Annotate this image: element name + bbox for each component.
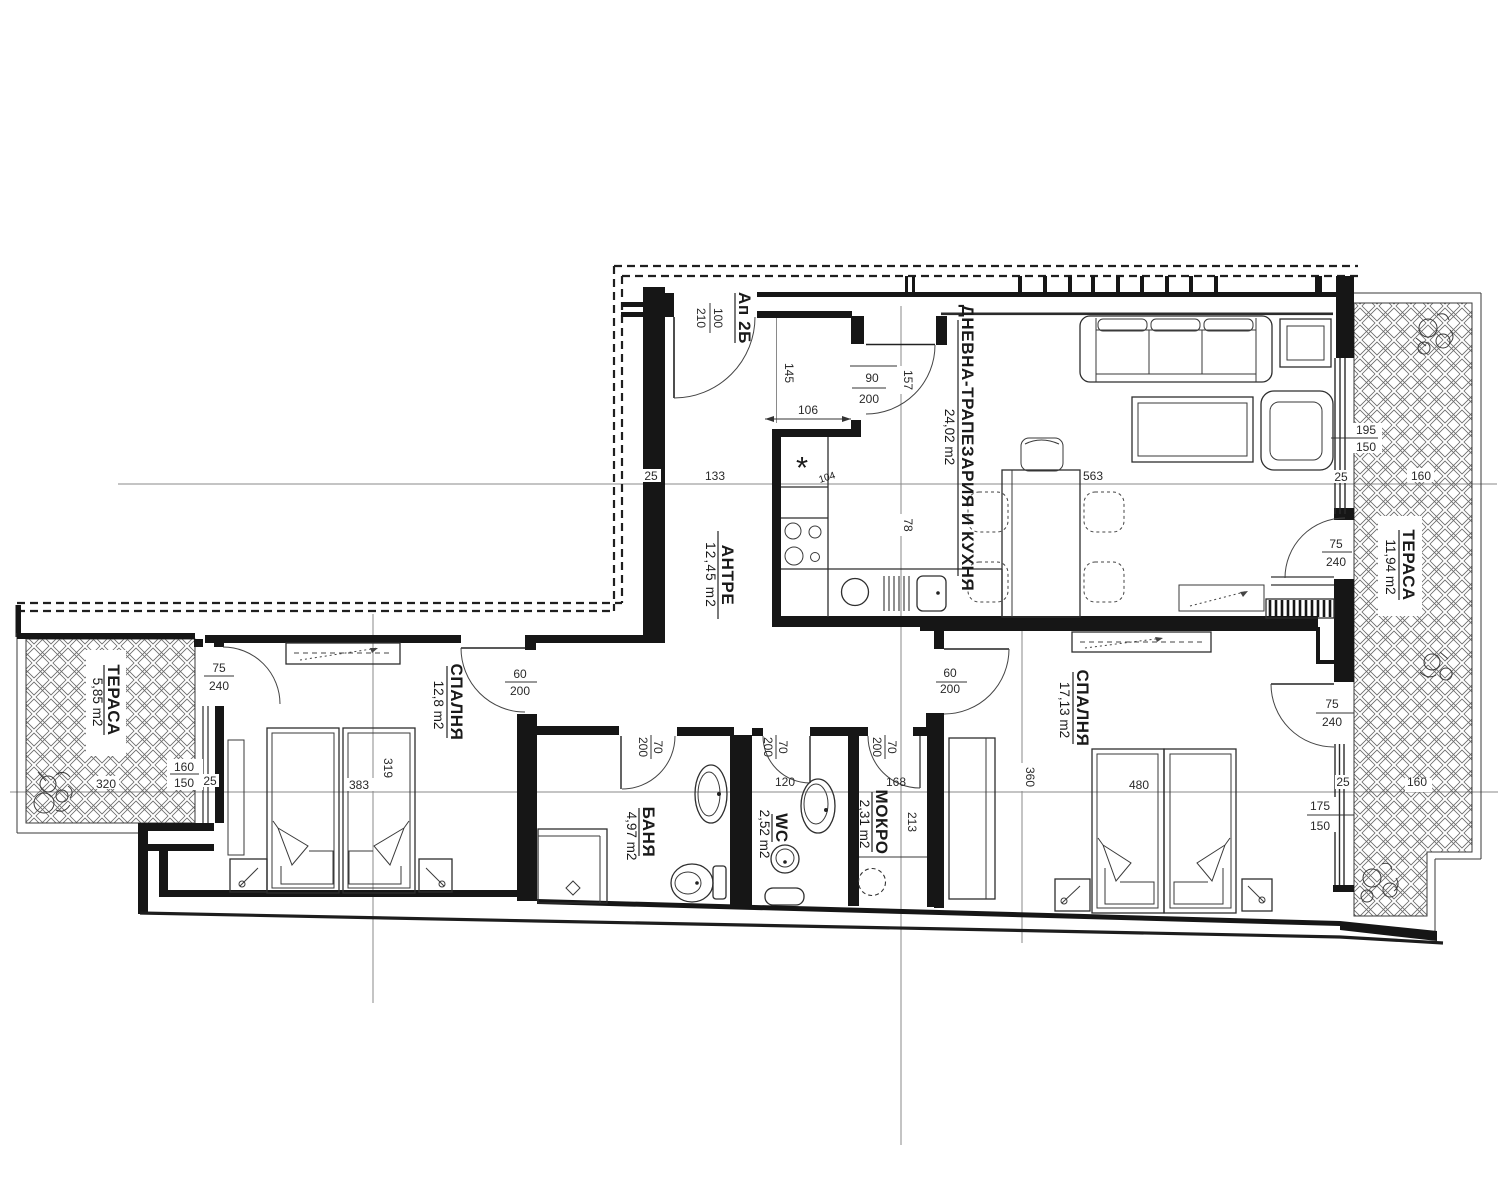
svg-text:150: 150 — [1310, 819, 1330, 833]
svg-text:5,85 m2: 5,85 m2 — [90, 678, 105, 727]
svg-text:60: 60 — [943, 666, 957, 680]
svg-text:АНТРЕ: АНТРЕ — [718, 545, 737, 606]
svg-text:200: 200 — [761, 737, 775, 757]
svg-text:70: 70 — [776, 740, 790, 754]
svg-text:100: 100 — [711, 308, 725, 328]
svg-text:160: 160 — [1407, 775, 1427, 789]
svg-text:157: 157 — [901, 370, 915, 390]
svg-text:25: 25 — [203, 774, 217, 788]
svg-text:383: 383 — [349, 778, 369, 792]
svg-text:ДНЕВНА-ТРАПЕЗАРИЯ И КУХНЯ: ДНЕВНА-ТРАПЕЗАРИЯ И КУХНЯ — [958, 305, 977, 592]
svg-text:210: 210 — [694, 308, 708, 328]
svg-text:160: 160 — [1411, 469, 1431, 483]
svg-text:240: 240 — [209, 679, 229, 693]
svg-text:12,45 m2: 12,45 m2 — [703, 542, 718, 608]
svg-text:480: 480 — [1129, 778, 1149, 792]
svg-text:25: 25 — [1336, 775, 1350, 789]
svg-text:213: 213 — [905, 812, 919, 832]
svg-text:11,94 m2: 11,94 m2 — [1383, 539, 1398, 594]
svg-text:200: 200 — [510, 684, 530, 698]
svg-text:СПАЛНЯ: СПАЛНЯ — [1073, 669, 1092, 746]
svg-text:150: 150 — [1356, 440, 1376, 454]
svg-text:360: 360 — [1023, 767, 1037, 787]
svg-text:12,8 m2: 12,8 m2 — [431, 681, 446, 730]
svg-text:60: 60 — [513, 667, 527, 681]
svg-text:240: 240 — [1326, 555, 1346, 569]
svg-text:25: 25 — [644, 469, 658, 483]
svg-text:СПАЛНЯ: СПАЛНЯ — [447, 663, 466, 740]
svg-text:Ап 2Б: Ап 2Б — [735, 292, 754, 344]
svg-text:168: 168 — [886, 775, 906, 789]
svg-text:200: 200 — [859, 392, 879, 406]
svg-text:563: 563 — [1083, 469, 1103, 483]
svg-text:75: 75 — [212, 661, 226, 675]
svg-text:ТЕРАСА: ТЕРАСА — [1399, 529, 1418, 600]
svg-text:145: 145 — [782, 363, 796, 383]
svg-text:240: 240 — [1322, 715, 1342, 729]
svg-text:90: 90 — [865, 371, 879, 385]
svg-text:200: 200 — [940, 682, 960, 696]
svg-text:70: 70 — [651, 740, 665, 754]
svg-text:320: 320 — [96, 777, 116, 791]
svg-text:75: 75 — [1329, 537, 1343, 551]
svg-text:70: 70 — [885, 740, 899, 754]
svg-text:2,31 m2: 2,31 m2 — [857, 800, 872, 849]
svg-text:200: 200 — [870, 737, 884, 757]
svg-text:*: * — [796, 450, 808, 485]
svg-text:175: 175 — [1310, 799, 1330, 813]
svg-text:24,02 m2: 24,02 m2 — [942, 409, 957, 465]
svg-text:160: 160 — [174, 760, 194, 774]
svg-text:БАНЯ: БАНЯ — [639, 807, 658, 858]
svg-text:МОКРО: МОКРО — [872, 789, 891, 854]
svg-text:WC: WC — [772, 813, 791, 843]
svg-text:133: 133 — [705, 469, 725, 483]
svg-text:ТЕРАСА: ТЕРАСА — [104, 664, 123, 735]
svg-text:120: 120 — [775, 775, 795, 789]
svg-text:150: 150 — [174, 776, 194, 790]
svg-text:2,52 m2: 2,52 m2 — [757, 810, 772, 859]
svg-text:17,13 m2: 17,13 m2 — [1057, 682, 1072, 738]
svg-text:4,97 m2: 4,97 m2 — [624, 812, 639, 861]
svg-text:319: 319 — [381, 758, 395, 778]
svg-text:75: 75 — [1325, 697, 1339, 711]
svg-text:25: 25 — [1334, 470, 1348, 484]
svg-text:106: 106 — [798, 403, 818, 417]
svg-text:195: 195 — [1356, 423, 1376, 437]
svg-text:200: 200 — [636, 737, 650, 757]
svg-text:78: 78 — [901, 518, 915, 532]
